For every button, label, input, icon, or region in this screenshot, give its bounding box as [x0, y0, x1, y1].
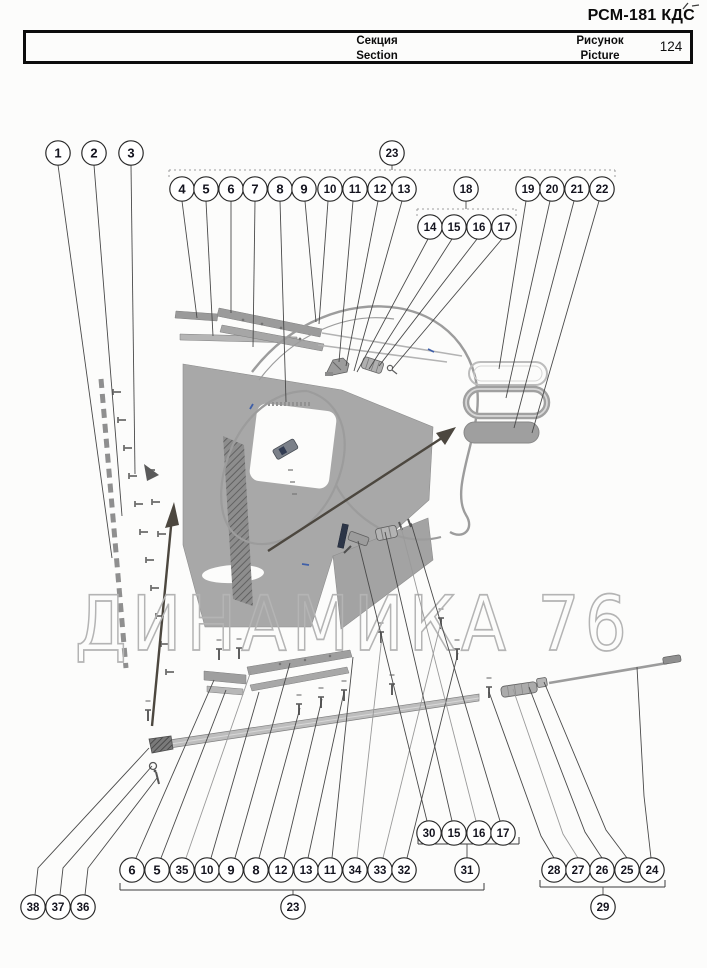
- leader-line-17: [392, 239, 502, 369]
- leader-line-4: [182, 201, 197, 318]
- svg-text:27: 27: [572, 865, 585, 877]
- leader-line-17: [411, 523, 500, 821]
- leader-line-2: [94, 165, 122, 516]
- clamp-parts: [325, 356, 397, 376]
- callout-9: 9: [219, 858, 243, 882]
- callout-8: 8: [268, 177, 292, 201]
- svg-text:37: 37: [52, 902, 65, 914]
- svg-text:31: 31: [461, 865, 474, 877]
- svg-text:24: 24: [646, 865, 659, 877]
- callout-16: 16: [467, 821, 491, 845]
- svg-text:5: 5: [202, 182, 209, 197]
- leader-line-11: [332, 657, 353, 858]
- callout-22: 22: [590, 177, 614, 201]
- svg-text:28: 28: [548, 865, 561, 877]
- leader-line-5: [161, 690, 226, 858]
- callout-24: 24: [640, 858, 664, 882]
- leader-line-6: [136, 680, 214, 858]
- callout-31: 31: [455, 858, 479, 882]
- callout-26: 26: [590, 858, 614, 882]
- svg-text:19: 19: [522, 184, 535, 196]
- leader-line-16: [401, 527, 476, 821]
- callout-23: 23: [281, 895, 305, 919]
- leader-line-35: [186, 671, 251, 858]
- svg-text:30: 30: [423, 828, 436, 840]
- svg-text:1: 1: [54, 146, 61, 161]
- callout-6: 6: [120, 858, 144, 882]
- callout-18: 18: [454, 177, 478, 201]
- svg-text:8: 8: [276, 182, 283, 197]
- callout-12: 12: [368, 177, 392, 201]
- bracket-group-23: [169, 165, 615, 177]
- callout-2: 2: [82, 141, 106, 165]
- svg-text:7: 7: [251, 182, 258, 197]
- svg-text:16: 16: [473, 828, 486, 840]
- mounting-strips-top: [175, 308, 462, 362]
- callout-11: 11: [343, 177, 367, 201]
- svg-text:12: 12: [275, 865, 288, 877]
- bracket-group-18: [417, 201, 516, 216]
- callout-23: 23: [380, 141, 404, 165]
- callout-10: 10: [195, 858, 219, 882]
- svg-text:9: 9: [227, 863, 234, 878]
- svg-text:5: 5: [153, 863, 160, 878]
- leader-line-24: [637, 667, 651, 858]
- svg-text:15: 15: [448, 222, 461, 234]
- svg-text:32: 32: [398, 865, 411, 877]
- callout-34: 34: [343, 858, 367, 882]
- leader-line-10: [319, 201, 328, 324]
- callout-37: 37: [46, 895, 70, 919]
- leader-line-15: [369, 239, 452, 369]
- svg-text:23: 23: [386, 148, 399, 160]
- svg-text:13: 13: [300, 865, 313, 877]
- svg-text:26: 26: [596, 865, 609, 877]
- leader-line-7: [253, 201, 255, 347]
- svg-text:35: 35: [176, 865, 189, 877]
- leader-line-1: [58, 165, 112, 558]
- callout-1: 1: [46, 141, 70, 165]
- svg-text:33: 33: [374, 865, 387, 877]
- callout-14: 14: [418, 215, 442, 239]
- svg-text:3: 3: [127, 146, 134, 161]
- callout-8: 8: [244, 858, 268, 882]
- callout-3: 3: [119, 141, 143, 165]
- callout-5: 5: [145, 858, 169, 882]
- svg-text:34: 34: [349, 865, 362, 877]
- leader-line-36: [85, 778, 157, 895]
- corner-mark: [683, 3, 699, 9]
- callout-27: 27: [566, 858, 590, 882]
- callout-35: 35: [170, 858, 194, 882]
- svg-text:38: 38: [27, 902, 40, 914]
- callout-6: 6: [219, 177, 243, 201]
- callout-5: 5: [194, 177, 218, 201]
- svg-text:25: 25: [621, 865, 634, 877]
- watermark: ДИНАМИКА 76: [75, 579, 632, 668]
- callout-25: 25: [615, 858, 639, 882]
- leader-line-25: [544, 682, 627, 858]
- svg-text:17: 17: [497, 828, 510, 840]
- callout-13: 13: [294, 858, 318, 882]
- leader-line-9: [305, 201, 316, 322]
- gasket-rings: [464, 362, 547, 443]
- svg-text:11: 11: [324, 865, 337, 877]
- svg-text:6: 6: [227, 182, 234, 197]
- leader-line-27: [513, 689, 578, 858]
- leader-line-34: [357, 636, 382, 858]
- callout-33: 33: [368, 858, 392, 882]
- svg-text:13: 13: [398, 184, 411, 196]
- callout-11: 11: [318, 858, 342, 882]
- svg-text:9: 9: [300, 182, 307, 197]
- callout-9: 9: [292, 177, 316, 201]
- svg-text:15: 15: [448, 828, 461, 840]
- callout-29: 29: [591, 895, 615, 919]
- callout-15: 15: [442, 821, 466, 845]
- callout-30: 30: [417, 821, 441, 845]
- callout-7: 7: [243, 177, 267, 201]
- svg-text:2: 2: [90, 146, 97, 161]
- svg-text:6: 6: [128, 863, 135, 878]
- catalog-page: РСМ-181 КДС Секция Section Рисунок Pictu…: [0, 0, 707, 968]
- callout-36: 36: [71, 895, 95, 919]
- callout-28: 28: [542, 858, 566, 882]
- svg-text:21: 21: [571, 184, 584, 196]
- leader-line-3: [131, 165, 135, 474]
- callout-38: 38: [21, 895, 45, 919]
- svg-text:36: 36: [77, 902, 90, 914]
- exploded-view-diagram: ДИНАМИКА 76 1234567891011121314151617192…: [0, 0, 707, 968]
- bracket-group-23: [120, 883, 484, 895]
- leader-line-8: [280, 201, 286, 402]
- svg-text:16: 16: [473, 222, 486, 234]
- callout-19: 19: [516, 177, 540, 201]
- svg-text:14: 14: [424, 222, 437, 234]
- callout-13: 13: [392, 177, 416, 201]
- svg-text:10: 10: [201, 865, 214, 877]
- callout-16: 16: [467, 215, 491, 239]
- callout-32: 32: [392, 858, 416, 882]
- leader-line-15: [385, 532, 452, 821]
- callout-17: 17: [491, 821, 515, 845]
- svg-text:10: 10: [324, 184, 337, 196]
- svg-text:18: 18: [460, 184, 473, 196]
- callout-17: 17: [492, 215, 516, 239]
- svg-text:20: 20: [546, 184, 559, 196]
- svg-text:11: 11: [349, 184, 362, 196]
- svg-text:23: 23: [287, 902, 300, 914]
- svg-text:12: 12: [374, 184, 387, 196]
- callout-4: 4: [170, 177, 194, 201]
- svg-text:4: 4: [178, 182, 186, 197]
- callout-21: 21: [565, 177, 589, 201]
- callout-10: 10: [318, 177, 342, 201]
- svg-text:22: 22: [596, 184, 609, 196]
- callout-20: 20: [540, 177, 564, 201]
- svg-text:29: 29: [597, 902, 610, 914]
- callout-12: 12: [269, 858, 293, 882]
- svg-text:17: 17: [498, 222, 511, 234]
- svg-text:8: 8: [252, 863, 259, 878]
- callout-15: 15: [442, 215, 466, 239]
